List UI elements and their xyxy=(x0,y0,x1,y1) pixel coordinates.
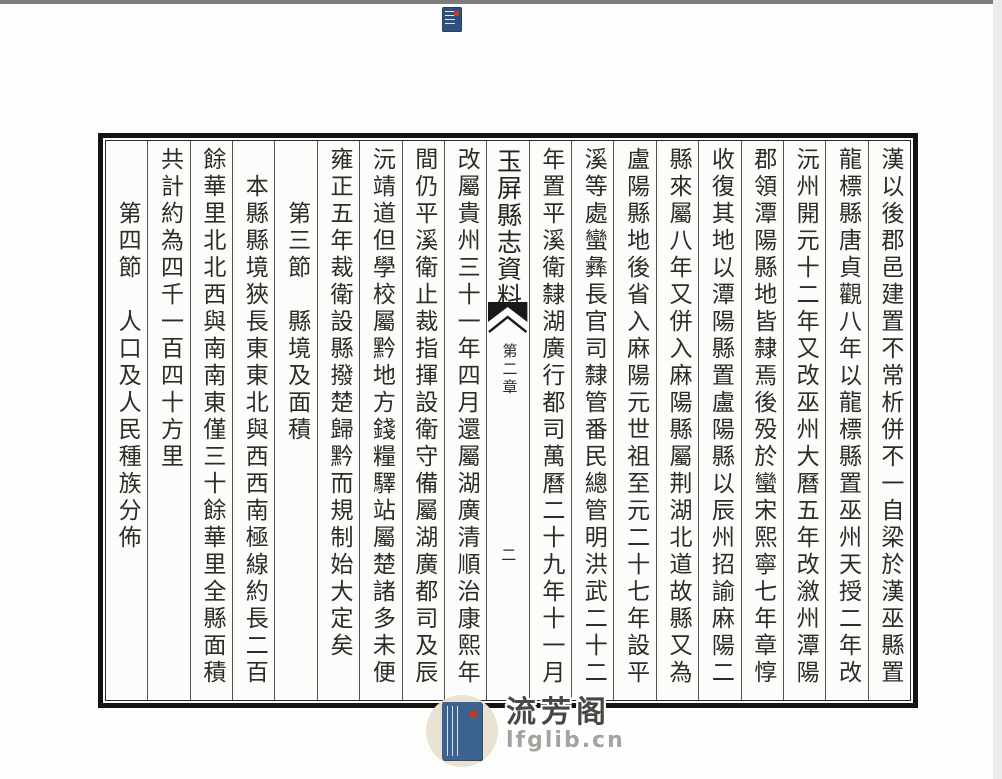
scan-right-edge xyxy=(993,0,1002,779)
text-column: 縣來屬八年又併入麻陽縣屬荆湖北道故縣又為 xyxy=(656,141,698,700)
page-columns: 漢以後郡邑建置不常析併不一自梁於漢巫縣置 龍標縣唐貞觀八年以龍標縣置巫州天授二年… xyxy=(106,141,910,700)
page-frame-inner: 漢以後郡邑建置不常析併不一自梁於漢巫縣置 龍標縣唐貞觀八年以龍標縣置巫州天授二年… xyxy=(105,140,911,701)
page-number: 二 xyxy=(498,547,519,562)
text-column: 郡領潭陽縣地皆隸焉後殁於蠻宋熙寧七年章惇 xyxy=(741,141,783,700)
page-frame: 漢以後郡邑建置不常析併不一自梁於漢巫縣置 龍標縣唐貞觀八年以龍標縣置巫州天授二年… xyxy=(98,133,918,708)
column-text: 盧陽縣地後省入麻陽元世祖至元二十七年設平 xyxy=(624,141,647,687)
chapter-divider-column: 玉屏縣志資料 第二章 二 xyxy=(486,141,528,700)
book-title: 玉屏縣志資料 xyxy=(495,148,520,310)
column-text: 第三節 縣境及面積 xyxy=(285,141,308,444)
column-text: 溪等處蠻彝長官司隸管番民總管明洪武二十二 xyxy=(581,141,604,687)
text-column: 溪等處蠻彝長官司隸管番民總管明洪武二十二 xyxy=(571,141,613,700)
scan-top-edge xyxy=(0,0,1002,4)
text-column: 收復其地以潭陽縣置盧陽縣以辰州招諭麻陽二 xyxy=(698,141,740,700)
watermark-site-name: 流芳阁 xyxy=(506,697,625,729)
book-icon xyxy=(442,702,482,760)
site-watermark: 流芳阁 lfglib.cn xyxy=(426,695,625,767)
text-column: 盧陽縣地後省入麻陽元世祖至元二十七年設平 xyxy=(613,141,655,700)
text-column: 漢以後郡邑建置不常析併不一自梁於漢巫縣置 xyxy=(868,141,910,700)
column-text: 本縣縣境狹長東東北與西西南極線約長二百 xyxy=(242,141,265,687)
text-column: 雍正五年裁衛設縣撥楚歸黔而規制始大定矣 xyxy=(317,141,359,700)
column-text: 年置平溪衛隸湖廣行都司萬曆二十九年十一月 xyxy=(539,141,562,687)
text-column: 沅靖道但學校屬黔地方錢糧驛站屬楚諸多未便 xyxy=(359,141,401,700)
text-column: 第三節 縣境及面積 xyxy=(274,141,316,700)
column-text: 郡領潭陽縣地皆隸焉後殁於蠻宋熙寧七年章惇 xyxy=(751,141,774,687)
text-column: 第四節 人口及人民種族分佈 xyxy=(106,141,147,700)
column-text: 縣來屬八年又併入麻陽縣屬荆湖北道故縣又為 xyxy=(666,141,689,687)
column-text: 間仍平溪衛止裁指揮設衛守備屬湖廣都司及辰 xyxy=(412,141,435,687)
fishtail-mark-icon xyxy=(488,302,527,340)
text-column: 本縣縣境狹長東東北與西西南極線約長二百 xyxy=(232,141,274,700)
column-text: 沅靖道但學校屬黔地方錢糧驛站屬楚諸多未便 xyxy=(369,141,392,687)
watermark-texts: 流芳阁 lfglib.cn xyxy=(506,695,625,753)
column-text: 沅州開元十二年又改巫州大曆五年改漵州潭陽 xyxy=(793,141,816,687)
text-column: 沅州開元十二年又改巫州大曆五年改漵州潭陽 xyxy=(783,141,825,700)
watermark-site-url: lfglib.cn xyxy=(506,729,625,753)
book-logo-icon xyxy=(442,7,462,32)
chapter-label: 第二章 xyxy=(500,343,521,397)
column-text: 雍正五年裁衛設縣撥楚歸黔而規制始大定矣 xyxy=(327,141,350,660)
text-column: 間仍平溪衛止裁指揮設衛守備屬湖廣都司及辰 xyxy=(402,141,444,700)
column-text: 餘華里北北西與南南東僅三十餘華里全縣面積 xyxy=(200,141,223,687)
column-text: 第四節 人口及人民種族分佈 xyxy=(115,141,138,552)
column-text: 共計約為四千一百四十方里 xyxy=(157,141,180,471)
text-column: 年置平溪衛隸湖廣行都司萬曆二十九年十一月 xyxy=(529,141,571,700)
text-column: 改屬貴州三十一年四月還屬湖廣清順治康熙年 xyxy=(444,141,486,700)
column-text: 漢以後郡邑建置不常析併不一自梁於漢巫縣置 xyxy=(878,141,901,687)
text-column: 共計約為四千一百四十方里 xyxy=(147,141,189,700)
column-text: 收復其地以潭陽縣置盧陽縣以辰州招諭麻陽二 xyxy=(708,141,731,687)
text-column: 龍標縣唐貞觀八年以龍標縣置巫州天授二年改 xyxy=(825,141,867,700)
text-column: 餘華里北北西與南南東僅三十餘華里全縣面積 xyxy=(190,141,232,700)
watermark-book-icon xyxy=(426,695,498,767)
column-text: 龍標縣唐貞觀八年以龍標縣置巫州天授二年改 xyxy=(835,141,858,687)
column-text: 改屬貴州三十一年四月還屬湖廣清順治康熙年 xyxy=(454,141,477,687)
